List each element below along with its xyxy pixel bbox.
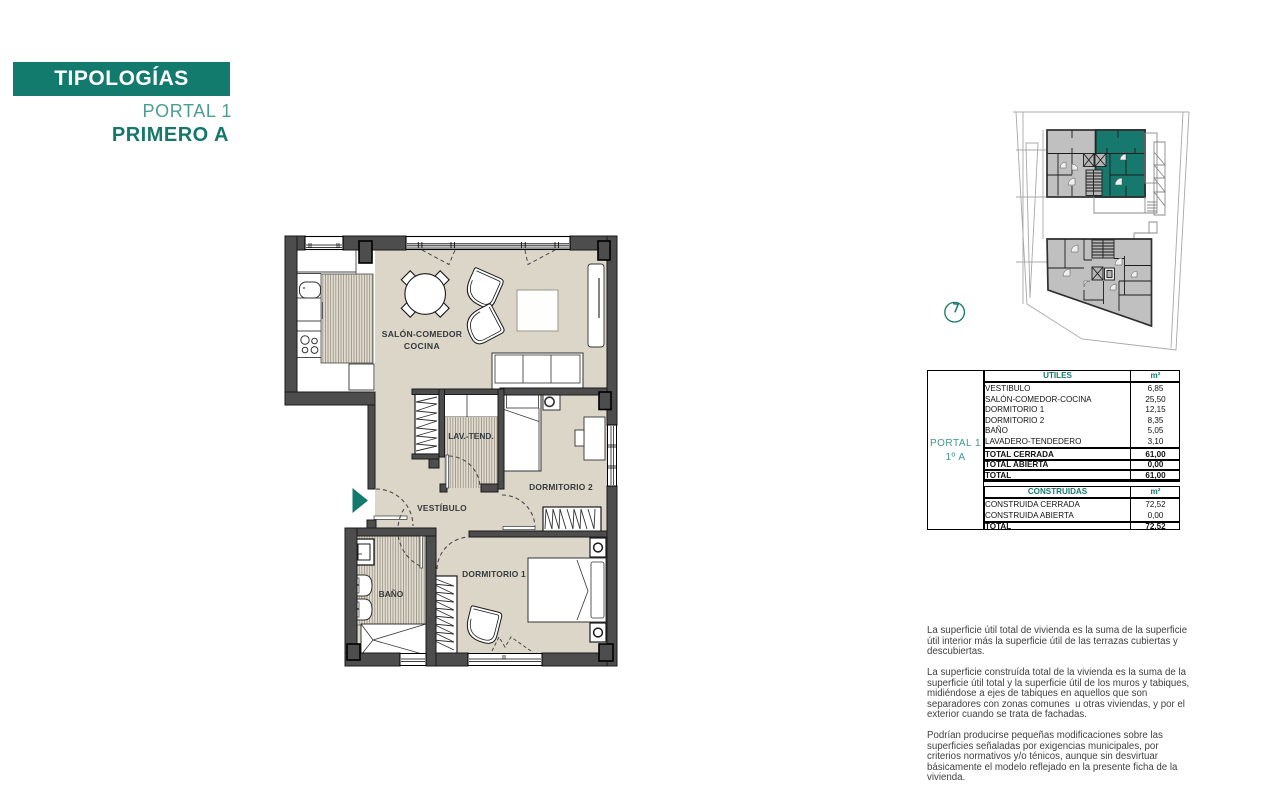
svg-text:DORMITORIO 1: DORMITORIO 1 [462,569,526,579]
svg-text:DORMITORIO 2: DORMITORIO 2 [529,482,593,492]
svg-text:COCINA: COCINA [404,341,440,351]
svg-text:BAÑO: BAÑO [379,589,404,599]
svg-text:LAV.-TEND.: LAV.-TEND. [448,431,494,441]
svg-text:SALÓN-COMEDOR: SALÓN-COMEDOR [382,328,463,339]
svg-text:VESTÍBULO: VESTÍBULO [417,502,467,513]
